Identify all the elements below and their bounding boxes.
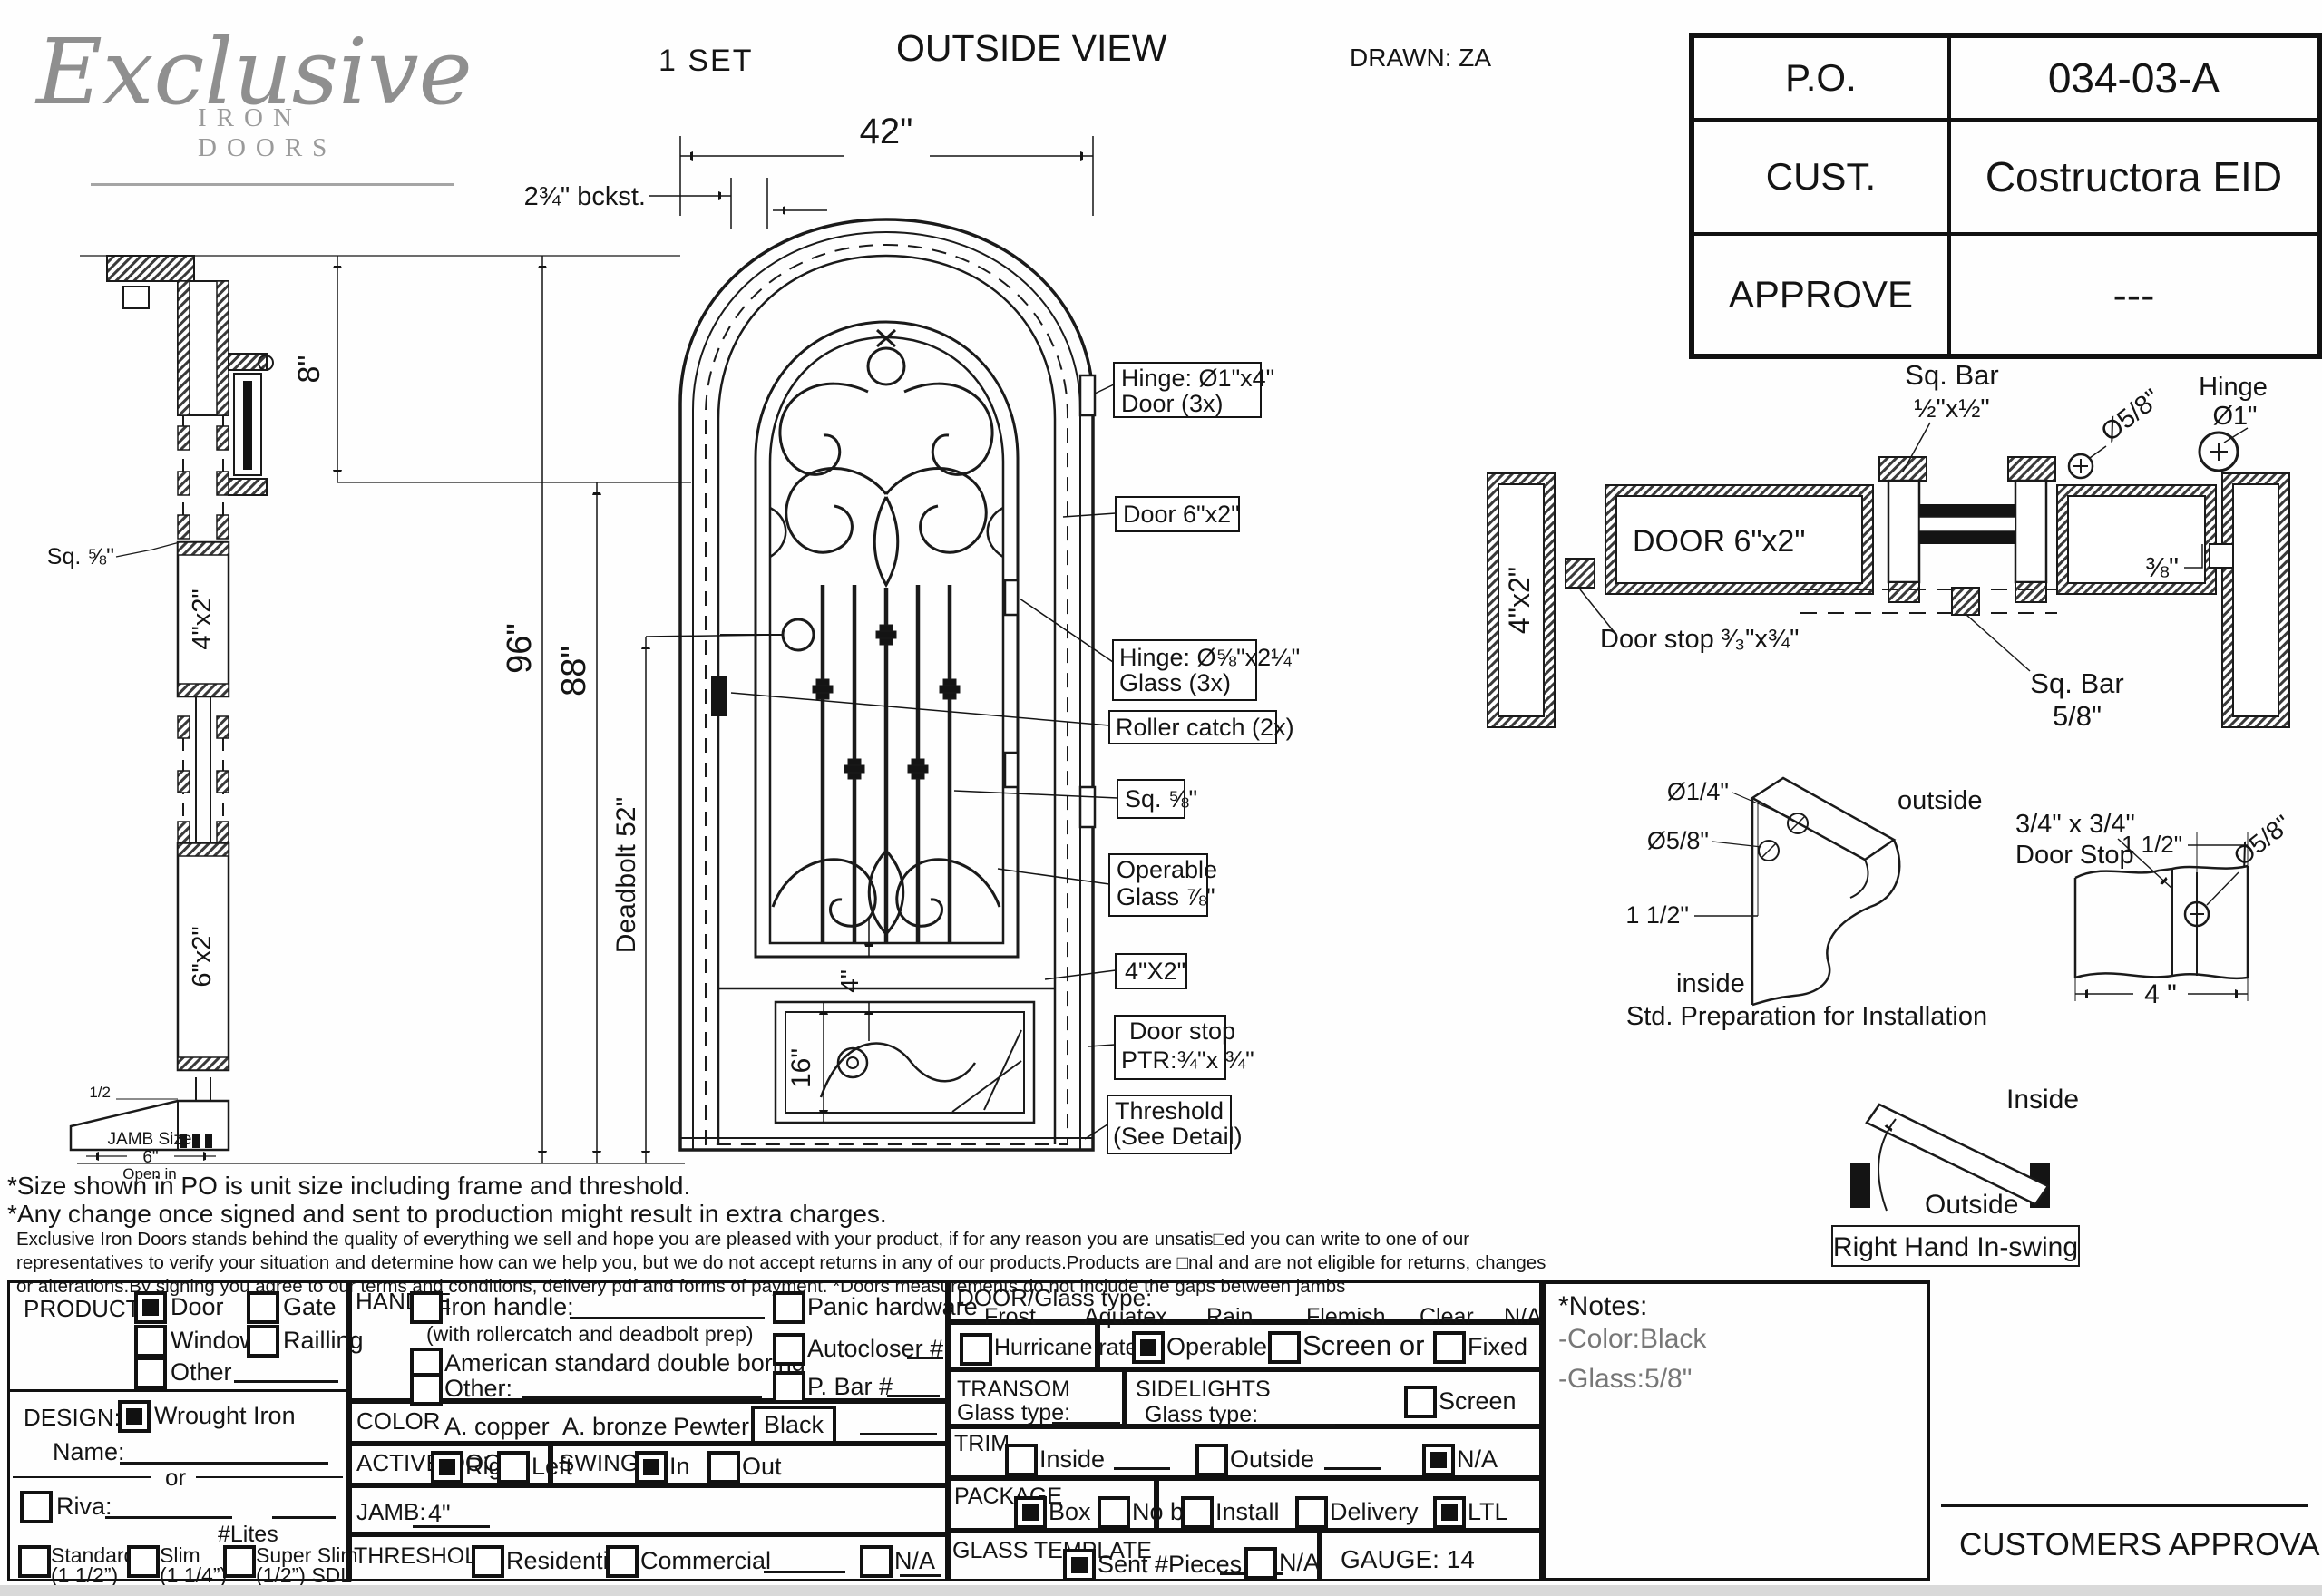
sidelights-glass-line[interactable] (1244, 1424, 1335, 1426)
section-sqbar-line1: Sq. Bar (1905, 359, 1998, 391)
handle-other-label: Other: (444, 1375, 512, 1403)
stop-dim4-label: 4 " (2144, 979, 2177, 1009)
dim-backset: 2¾" bckst. (524, 182, 646, 211)
slim-label-line2: (1 1/4”) (160, 1563, 227, 1588)
design-name-label: Name: (53, 1438, 125, 1466)
trim-label: TRIM (954, 1431, 1010, 1457)
callout-hinge-door-line1: Hinge: Ø1"x4" (1121, 365, 1274, 392)
or-divider-right (196, 1476, 343, 1478)
dim-door-height: 88" (555, 646, 593, 696)
callout-door-stop-line2: PTR:¾"x ¾" (1121, 1046, 1254, 1074)
glass-flemish-option[interactable]: Flemish (1306, 1304, 1386, 1330)
prep-caption: Std. Preparation for Installation (1626, 1002, 1987, 1031)
iron-handle-label: Iron handle: (444, 1293, 574, 1321)
page-title: OUTSIDE VIEW (896, 27, 1166, 70)
checkbox-product-railing[interactable] (247, 1325, 279, 1358)
checkbox-trim-inside[interactable] (1005, 1444, 1038, 1476)
trim-na-label: N/A (1457, 1445, 1498, 1474)
jamb-line[interactable] (413, 1525, 490, 1528)
prep-inside-label: inside (1676, 969, 1745, 998)
checkbox-package-nobox[interactable] (1098, 1496, 1130, 1529)
section-dia58-label: Ø5/8" (2096, 384, 2166, 447)
color-other-line[interactable] (860, 1433, 937, 1435)
checkbox-delivery[interactable] (1295, 1496, 1328, 1529)
stop-title-line2: Door Stop (2015, 841, 2134, 870)
section-jamb-label: 4"x2" (1503, 567, 1536, 634)
swing-outside-label: Outside (1925, 1190, 2018, 1220)
jamb-4x2-label: 4"x2" (188, 589, 217, 649)
threshold-na-line[interactable] (900, 1574, 941, 1577)
screen-or-label: Screen or (1302, 1329, 1424, 1362)
trim-outside-label: Outside (1230, 1445, 1314, 1474)
checkbox-active-left[interactable] (497, 1451, 530, 1484)
section-hinge-line2: Ø1" (2213, 402, 2258, 431)
hurricane-label: Hurricane rated (994, 1335, 1150, 1361)
bottom-edge-strip (0, 1585, 2322, 1596)
callout-rail-4x2: 4"X2" (1125, 958, 1185, 985)
dim-rail4: 4" (835, 969, 863, 993)
checkbox-swing-in[interactable] (635, 1451, 668, 1484)
dim-panel16: 16" (786, 1048, 816, 1088)
jamb-value: 4" (428, 1500, 451, 1528)
section-door-label: DOOR 6"x2" (1633, 524, 1805, 559)
trim-inside-line[interactable] (1114, 1467, 1170, 1470)
checkbox-product-window[interactable] (134, 1325, 167, 1358)
delivery-label: Delivery (1330, 1498, 1419, 1526)
swing-inside-label: Inside (2006, 1085, 2079, 1114)
set-count: 1 SET (659, 44, 753, 79)
note-para2: representatives to verify your situation… (16, 1251, 1546, 1275)
order-info-table: P.O. 034-03-A CUST. Costructora EID APPR… (1689, 33, 2322, 359)
install-label: Install (1215, 1498, 1280, 1526)
note-line2: *Any change once signed and sent to prod… (7, 1200, 1546, 1228)
callout-door-stop-line1: Door stop (1129, 1017, 1235, 1045)
section-sqbar58-line2: 5/8" (2053, 700, 2102, 732)
swing-out-label: Out (742, 1453, 782, 1481)
product-label: PRODUCT: (24, 1295, 144, 1323)
notes-block: *Size shown in PO is unit size including… (7, 1172, 1546, 1299)
handle-other-line[interactable] (522, 1396, 762, 1399)
pbar-line[interactable] (887, 1395, 940, 1397)
color-copper-option[interactable]: A. copper (444, 1413, 550, 1441)
glass-aquatex-option[interactable]: Aquatex (1084, 1304, 1167, 1330)
checkbox-slim[interactable] (127, 1545, 160, 1578)
checkbox-riva[interactable] (20, 1491, 53, 1523)
checkbox-install[interactable] (1181, 1496, 1214, 1529)
checkbox-sidelights-screen[interactable] (1404, 1386, 1437, 1418)
callout-hinge-glass-line2: Glass (3x) (1119, 669, 1231, 696)
american-boring-label: American standard double boring (444, 1349, 805, 1377)
design-label: DESIGN: (24, 1404, 121, 1432)
approval-signature-line[interactable] (1941, 1504, 2308, 1507)
pbar-label: P. Bar # (807, 1373, 893, 1401)
autocloser-line[interactable] (907, 1357, 943, 1359)
checkbox-design-wrought[interactable] (118, 1400, 151, 1433)
callout-hinge-door-line2: Door (3x) (1121, 390, 1224, 417)
callout-operable-line1: Operable (1117, 856, 1217, 883)
swing-label: SWING (559, 1449, 639, 1477)
checkbox-ltl[interactable] (1433, 1496, 1466, 1529)
checkbox-fixed[interactable] (1433, 1331, 1466, 1364)
order-notes-title: *Notes: (1558, 1291, 1647, 1322)
approve-value: --- (1949, 234, 2318, 355)
checkbox-threshold-residential[interactable] (472, 1545, 504, 1578)
callout-threshold-line1: Threshold (1115, 1097, 1224, 1124)
threshold-commercial-line[interactable] (764, 1571, 845, 1573)
stop-title-line1: 3/4" x 3/4" (2015, 810, 2135, 839)
color-bronze-option[interactable]: A. bronze (562, 1413, 668, 1441)
po-value: 034-03-A (1949, 36, 2318, 120)
super-slim-label-line2: (1/2”) SDL (256, 1563, 352, 1588)
fixed-label: Fixed (1468, 1333, 1527, 1361)
checkbox-active-right[interactable] (431, 1451, 463, 1484)
prep-dia14-label: Ø1/4" (1667, 778, 1729, 805)
checkbox-screen[interactable] (1268, 1331, 1301, 1364)
stop-dia58-label: Ø5/8" (2229, 810, 2297, 871)
transom-label: TRANSOM (957, 1377, 1070, 1403)
callout-door-tube: Door 6"x2" (1123, 501, 1240, 528)
trim-outside-line[interactable] (1324, 1467, 1381, 1470)
sidelights-label: SIDELIGHTS (1136, 1377, 1271, 1403)
po-label: P.O. (1693, 36, 1949, 120)
checkbox-product-gate[interactable] (247, 1291, 279, 1324)
product-other-label: Other (171, 1358, 232, 1387)
threshold-commercial-label: Commercial (640, 1547, 771, 1575)
template-na-label: N/A (1279, 1549, 1320, 1577)
checkbox-iron-handle[interactable] (410, 1291, 443, 1324)
jamb-size-line2: 6" (142, 1148, 158, 1167)
product-gate-label: Gate (283, 1293, 337, 1321)
product-other-line[interactable] (234, 1380, 338, 1383)
callout-operable-line2: Glass ⅞" (1117, 883, 1215, 910)
section-frac38-label: ⅜" (2145, 551, 2179, 583)
checkbox-super-slim[interactable] (223, 1545, 256, 1578)
callout-threshold-line2: (See Detail) (1113, 1123, 1243, 1150)
order-notes-glass: -Glass:5/8" (1558, 1364, 1692, 1395)
approval-label: CUSTOMERS APPROVAL (1959, 1527, 2322, 1563)
note-para1: Exclusive Iron Doors stands behind the q… (16, 1228, 1546, 1251)
checkbox-template-na[interactable] (1244, 1547, 1277, 1580)
company-logo: Exclusive IRON DOORS (36, 27, 435, 218)
checkbox-handle-other[interactable] (410, 1373, 443, 1406)
ltl-label: LTL (1468, 1498, 1508, 1526)
stop-dim112-label: 1 1/2" (2122, 831, 2182, 858)
drawn-by: DRAWN: ZA (1350, 44, 1491, 73)
package-box-label: Box (1049, 1498, 1091, 1526)
jamb-half-label: 1/2 (89, 1084, 111, 1101)
spec-sheet-page: 42" 2¾" bckst. 8" 96" 88" Deadbolt 52" 1… (0, 0, 2322, 1596)
callout-sq-bar: Sq. ⅝" (1125, 785, 1197, 813)
checkbox-hurricane[interactable] (960, 1333, 992, 1366)
checkbox-threshold-na[interactable] (860, 1545, 893, 1578)
iron-handle-line[interactable] (570, 1317, 765, 1319)
iron-handle-note: (with rollercatch and deadbolt prep) (426, 1322, 754, 1347)
operable-label: Operable (1166, 1333, 1267, 1361)
transom-glass-line[interactable] (1052, 1422, 1120, 1425)
trim-inside-label: Inside (1039, 1445, 1105, 1474)
jamb-label: JAMB: (356, 1498, 426, 1526)
callout-hinge-glass-line1: Hinge: Ø⅝"x2¼" (1119, 644, 1300, 671)
product-door-label: Door (171, 1293, 224, 1321)
section-door-stop-label: Door stop ³⁄₃"x¾" (1600, 625, 1799, 654)
threshold-na-label: N/A (894, 1547, 935, 1575)
dim-width: 42" (860, 112, 913, 151)
riva-line-2[interactable] (272, 1516, 336, 1519)
checkbox-panic-hardware[interactable] (773, 1291, 805, 1324)
dim-unit-height: 96" (501, 623, 539, 674)
swing-caption: Right Hand In-swing (1833, 1232, 2078, 1262)
logo-underline (91, 183, 454, 186)
riva-line[interactable] (105, 1516, 232, 1519)
dim-deadbolt: Deadbolt 52" (611, 797, 641, 953)
approve-label: APPROVE (1693, 234, 1949, 355)
checkbox-template-sent[interactable] (1063, 1549, 1096, 1581)
or-divider-left (13, 1476, 151, 1478)
color-pewter-option[interactable]: Pewter (673, 1413, 749, 1441)
checkbox-package-box[interactable] (1014, 1496, 1047, 1529)
prep-dim112-label: 1 1/2" (1625, 901, 1689, 929)
jamb-section (71, 256, 273, 1156)
glass-clear-option[interactable]: Clear (1420, 1304, 1474, 1330)
color-label: COLOR (356, 1407, 440, 1435)
gauge-value: GAUGE: 14 (1341, 1545, 1475, 1574)
glass-frost-option[interactable]: Frost (984, 1304, 1036, 1330)
standard-label-line2: (1 1/2”) (51, 1563, 118, 1588)
callout-roller-catch: Roller catch (2x) (1116, 714, 1294, 741)
swing-in-label: In (669, 1453, 690, 1481)
design-name-line[interactable] (120, 1462, 328, 1465)
glass-na-option[interactable]: N/A (1504, 1304, 1542, 1330)
checkbox-threshold-commercial[interactable] (606, 1545, 639, 1578)
riva-label: Riva: (56, 1493, 112, 1521)
checkbox-operable[interactable] (1132, 1331, 1165, 1364)
design-or-label: or (165, 1464, 186, 1492)
order-notes-color: -Color:Black (1558, 1324, 1706, 1355)
section-sqbar58-line1: Sq. Bar (2030, 667, 2123, 699)
jamb-sq-label: Sq. ⅝" (47, 544, 114, 569)
product-window-label: Window (171, 1327, 258, 1355)
checkbox-standard[interactable] (18, 1545, 51, 1578)
door-elevation (680, 219, 1095, 1150)
sidelights-glass-label: Glass type: (1145, 1402, 1258, 1428)
prep-outside-label: outside (1898, 786, 1983, 815)
sidelights-screen-label: Screen (1439, 1387, 1517, 1416)
checkbox-trim-na[interactable] (1422, 1444, 1455, 1476)
checkbox-swing-out[interactable] (707, 1451, 740, 1484)
checkbox-pbar[interactable] (773, 1371, 805, 1404)
note-line1: *Size shown in PO is unit size including… (7, 1172, 1546, 1200)
checkbox-trim-outside[interactable] (1195, 1444, 1228, 1476)
cust-value: Costructora EID (1949, 120, 2318, 235)
design-wrought-label: Wrought Iron (154, 1402, 296, 1430)
prep-dia58-label: Ø5/8" (1647, 827, 1709, 854)
section-sqbar-line2: ½"x½" (1914, 394, 1989, 423)
jamb-size-line1: JAMB Size (108, 1130, 192, 1149)
cust-label: CUST. (1693, 120, 1949, 235)
checkbox-autocloser[interactable] (773, 1333, 805, 1366)
checkbox-product-door[interactable] (134, 1291, 167, 1324)
checkbox-product-other[interactable] (134, 1357, 167, 1389)
glass-rain-option[interactable]: Rain (1206, 1304, 1253, 1330)
jamb-6x2-label: 6"x2" (188, 926, 217, 987)
color-black-option-selected[interactable]: Black (751, 1406, 836, 1445)
dim-arch: 8" (292, 355, 327, 384)
section-hinge-line1: Hinge (2199, 373, 2268, 402)
